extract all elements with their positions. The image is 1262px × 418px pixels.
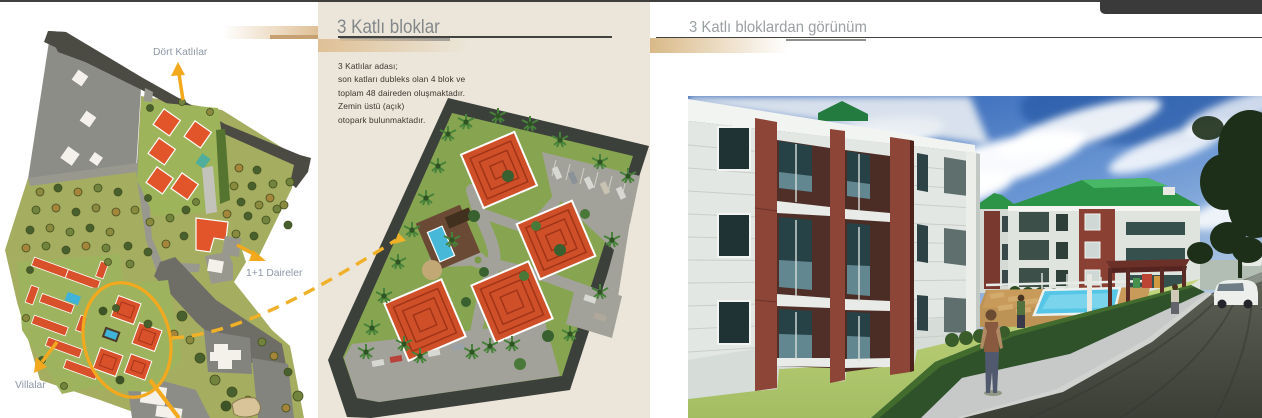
svg-text:1+1 Daireler: 1+1 Daireler <box>246 268 303 279</box>
svg-text:Villalar: Villalar <box>15 380 46 391</box>
svg-text:Dört Katlılar: Dört Katlılar <box>153 47 208 58</box>
